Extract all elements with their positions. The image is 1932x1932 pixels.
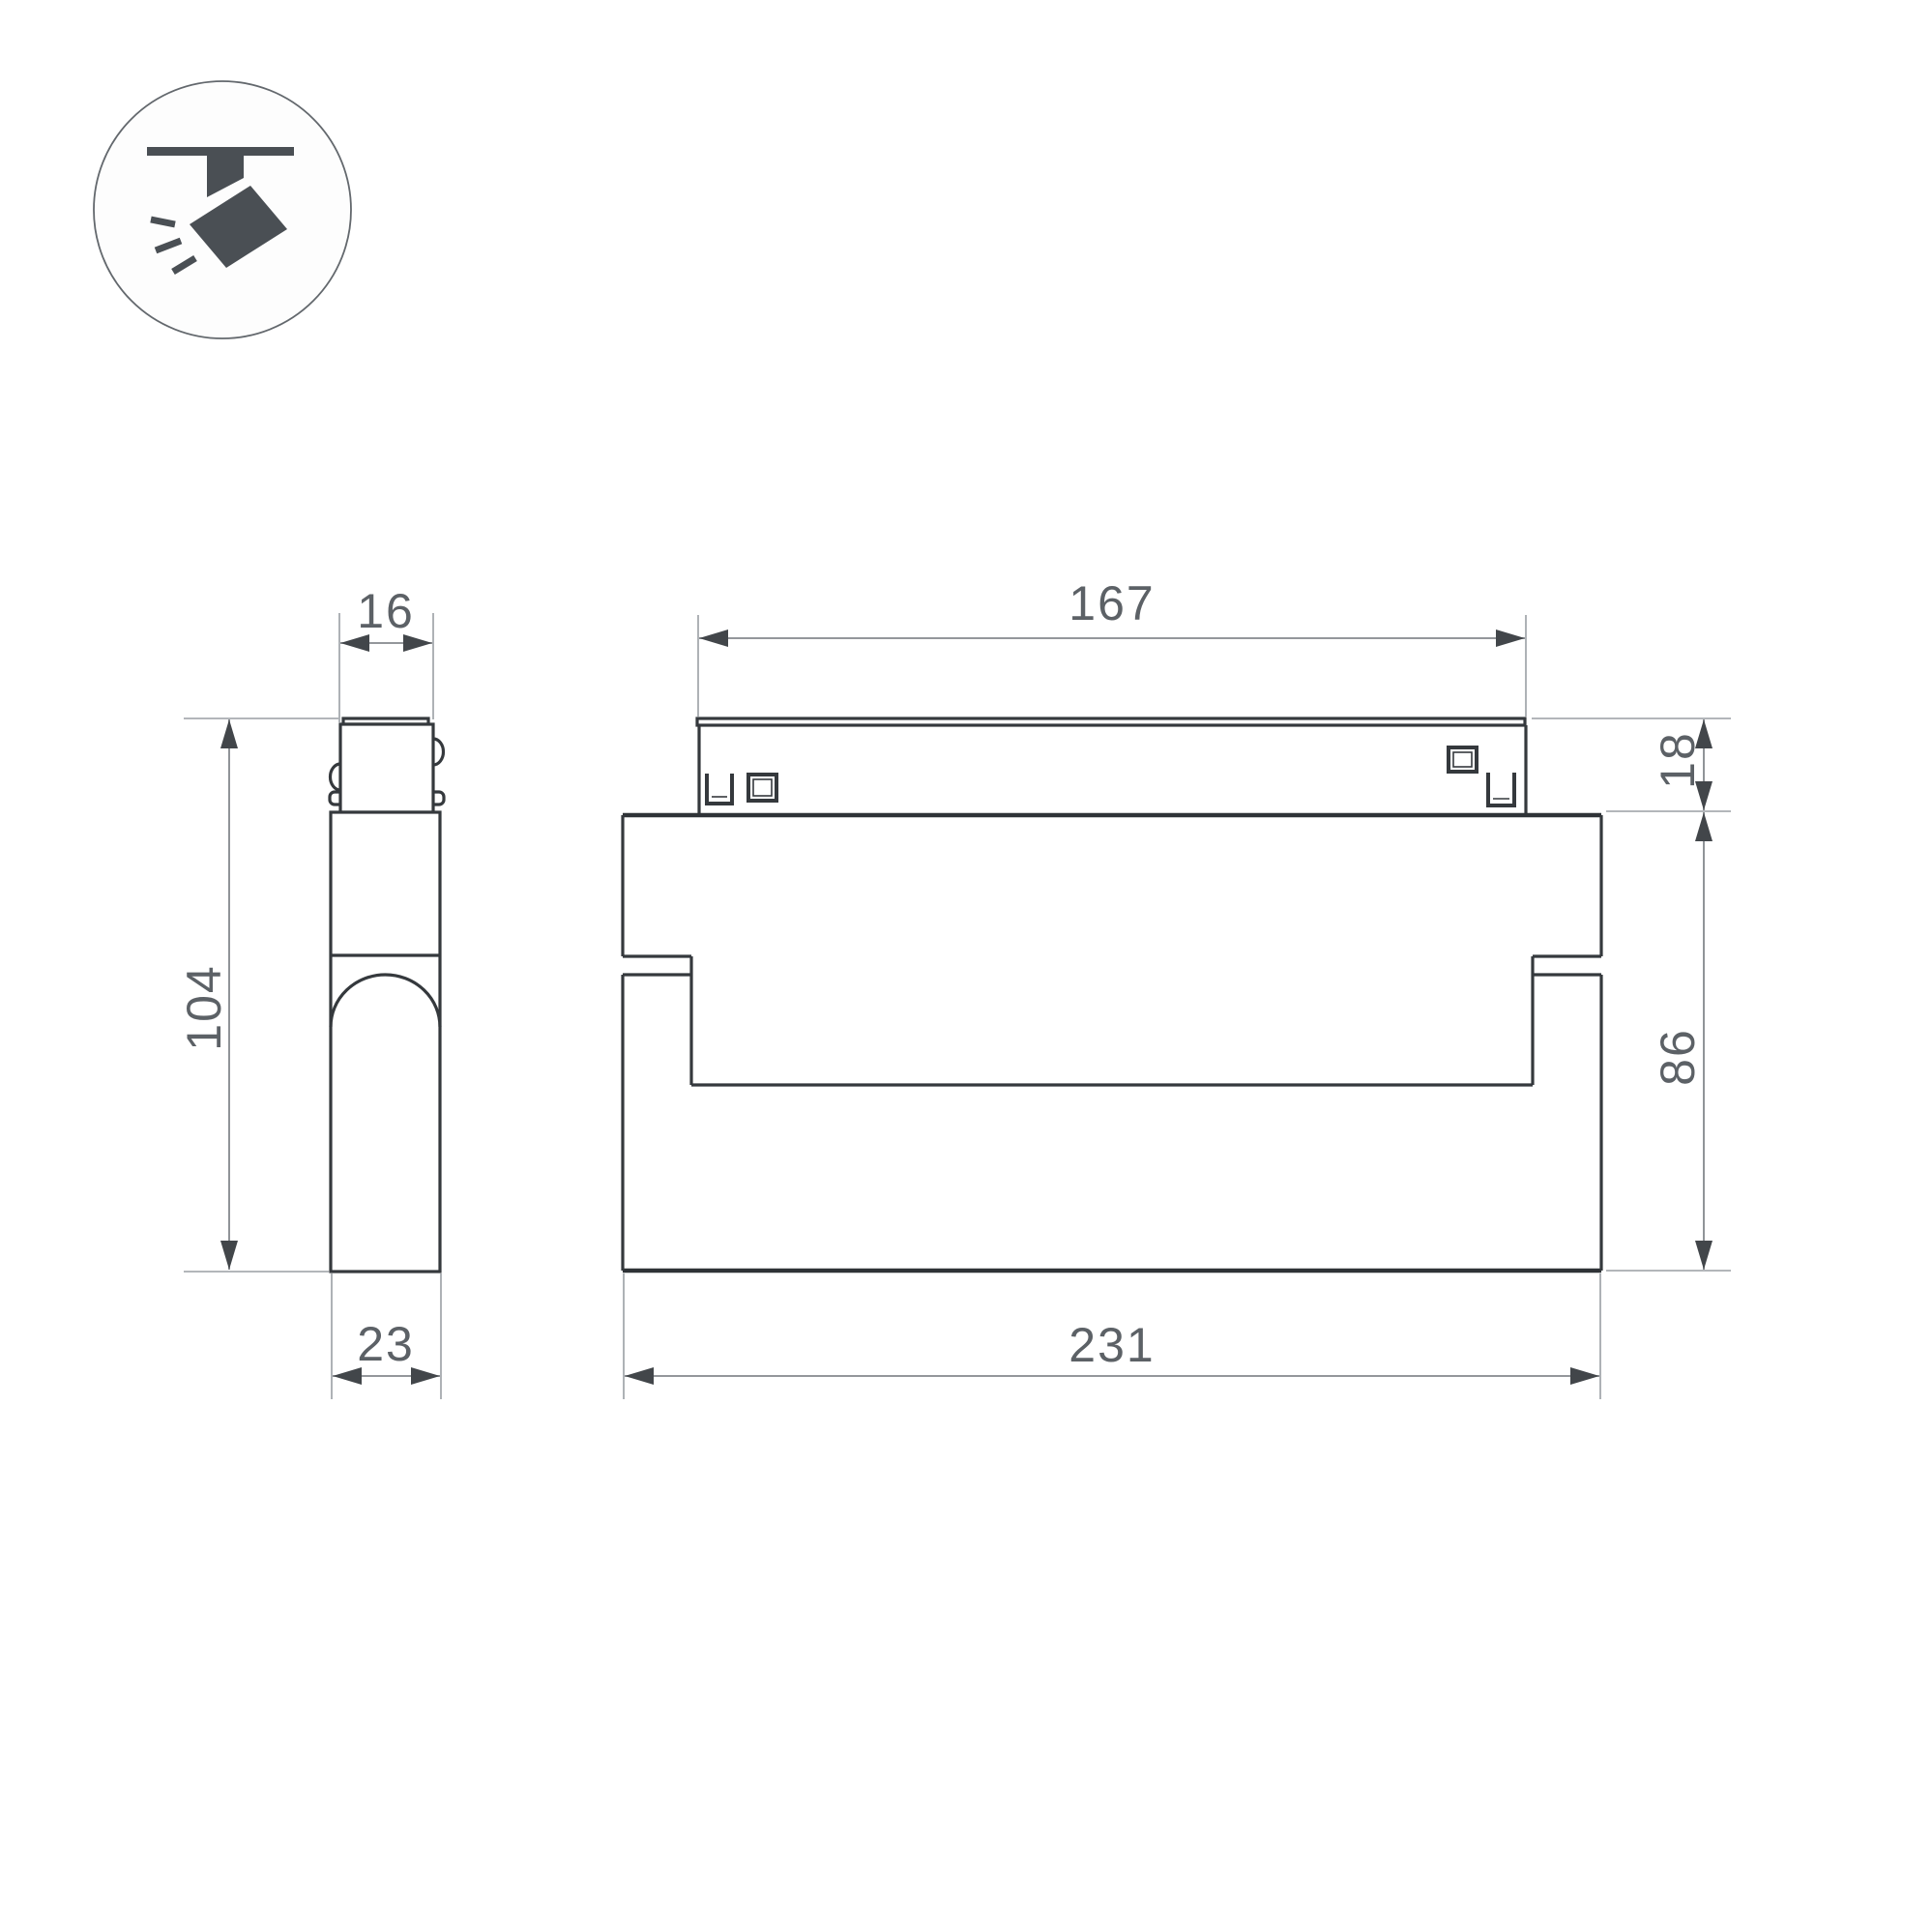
dimension-86: 86: [1606, 812, 1731, 1271]
dimension-23: 23: [332, 1273, 441, 1399]
arrow-down: [1695, 1241, 1712, 1270]
dim-label-104: 104: [177, 964, 231, 1050]
arrow-up: [1695, 812, 1712, 841]
side-lamp-body: [331, 812, 440, 1272]
product-icon: [94, 81, 351, 338]
front-right-u-clip: [1488, 773, 1514, 805]
dim-label-23: 23: [357, 1317, 415, 1371]
arrow-down: [220, 1241, 238, 1270]
arrow-left: [699, 629, 728, 647]
dimension-16: 16: [339, 584, 433, 722]
front-left-square-clip-inner: [753, 779, 772, 796]
front-left-u-clip: [707, 774, 732, 804]
dim-label-231: 231: [1068, 1318, 1155, 1372]
icon-light-ray: [151, 220, 175, 224]
dim-label-167: 167: [1068, 576, 1155, 630]
dimension-167: 167: [698, 576, 1526, 717]
arrow-left: [625, 1367, 654, 1385]
dimension-104: 104: [177, 718, 338, 1272]
dimension-18: 18: [1532, 718, 1731, 811]
dim-label-18: 18: [1651, 731, 1705, 789]
drawing-svg: 16 104 23 167 18: [0, 0, 1932, 1932]
dim-label-86: 86: [1651, 1028, 1705, 1086]
arrow-right: [1496, 629, 1525, 647]
dim-label-16: 16: [357, 584, 415, 638]
icon-ceiling-bar: [147, 147, 294, 156]
dimension-drawing-page: 16 104 23 167 18: [0, 0, 1932, 1932]
side-right-clip-hook: [433, 792, 444, 805]
side-view: [330, 718, 444, 1272]
arrow-right: [411, 1367, 440, 1385]
front-view: [623, 718, 1601, 1271]
front-right-square-clip-inner: [1453, 752, 1472, 767]
dimension-231: 231: [624, 1273, 1600, 1399]
side-adapter-stem: [340, 724, 433, 812]
arrow-right: [1570, 1367, 1599, 1385]
side-left-clip-hook: [330, 792, 340, 805]
front-track-plate: [697, 718, 1525, 725]
arrow-up: [220, 719, 238, 748]
